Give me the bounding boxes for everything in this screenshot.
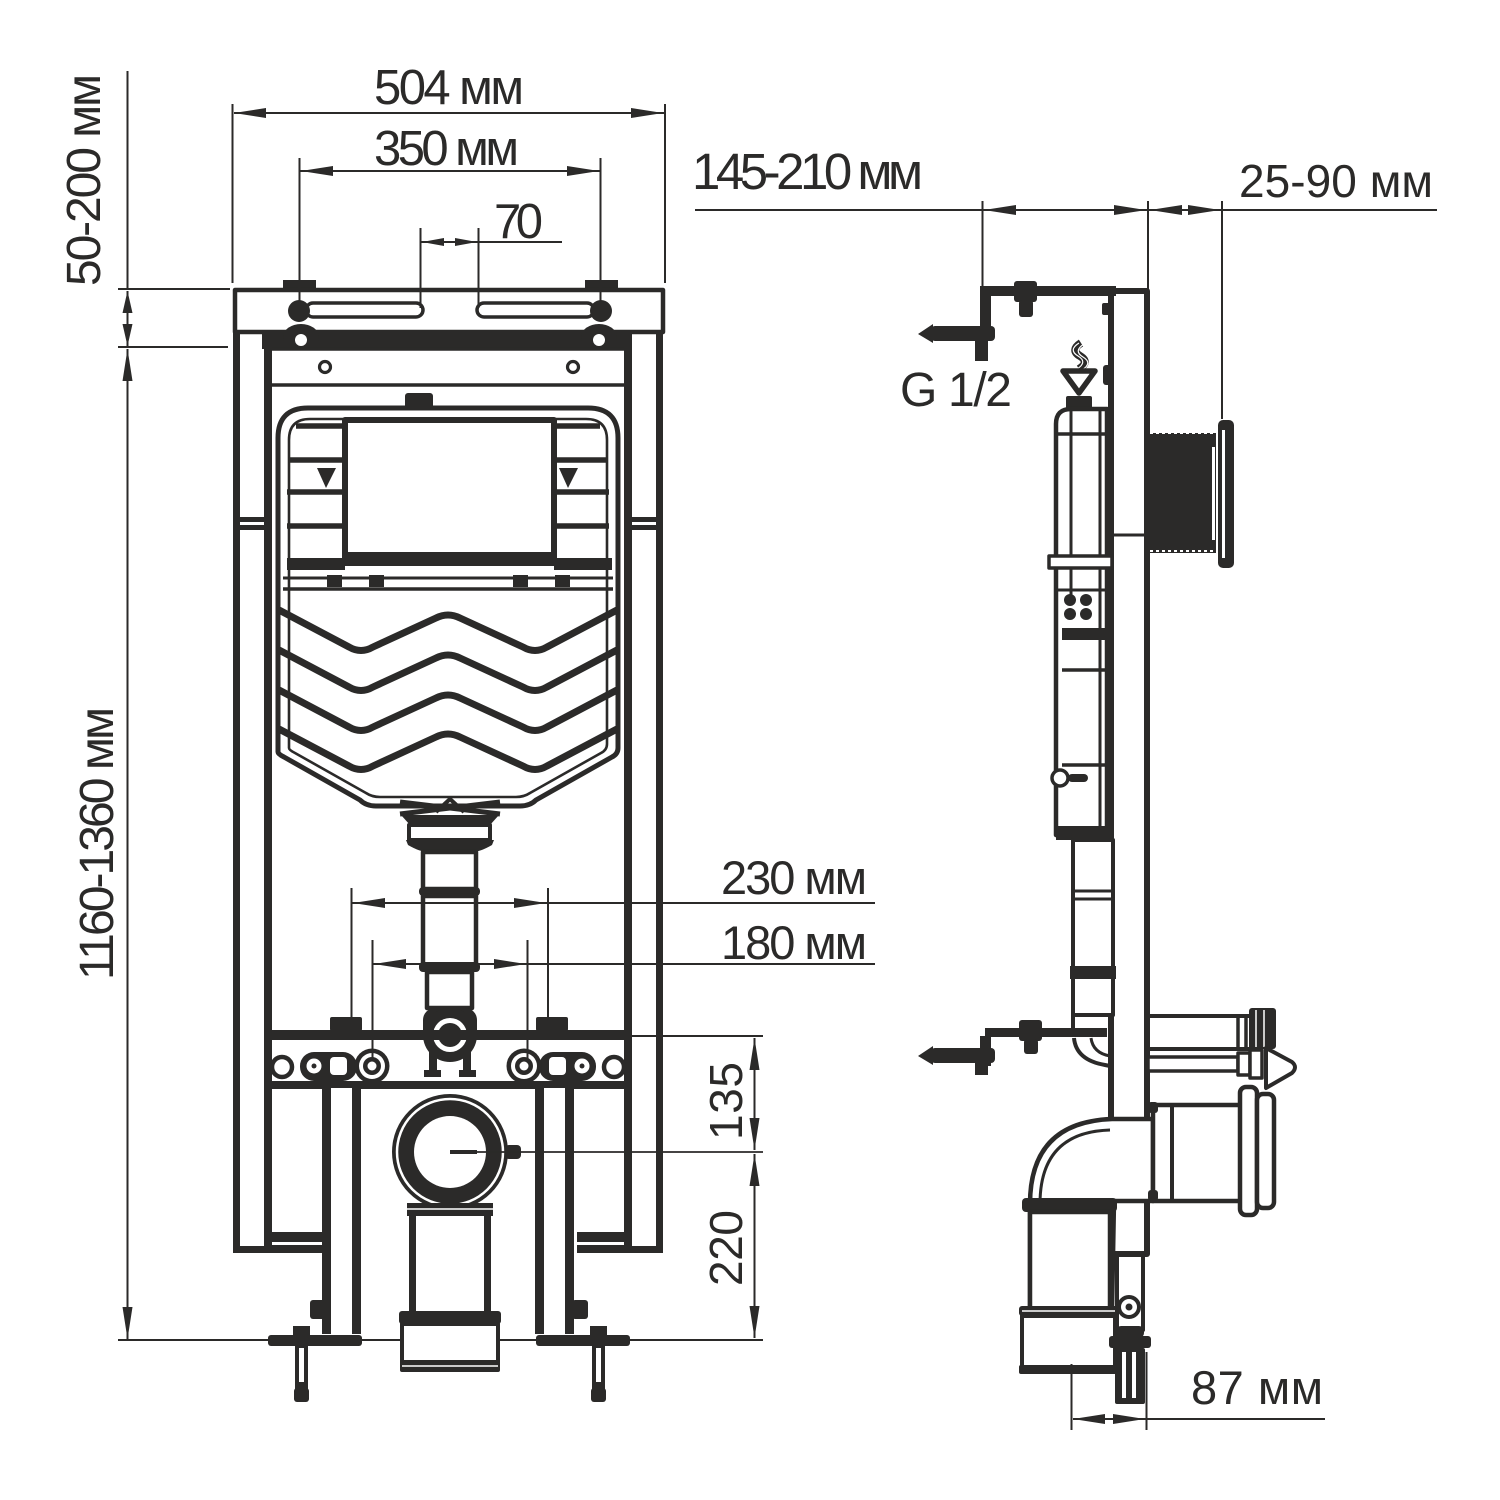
- svg-text:145-210 мм: 145-210 мм: [692, 143, 923, 200]
- svg-text:504 мм: 504 мм: [374, 61, 524, 115]
- svg-text:220: 220: [700, 1210, 752, 1286]
- svg-text:50-200 мм: 50-200 мм: [58, 74, 111, 286]
- svg-text:87 мм: 87 мм: [1191, 1361, 1323, 1414]
- svg-text:70: 70: [494, 195, 543, 249]
- svg-text:1160-1360 мм: 1160-1360 мм: [71, 707, 124, 980]
- svg-text:230 мм: 230 мм: [721, 851, 867, 904]
- svg-text:G 1/2: G 1/2: [900, 364, 1012, 417]
- svg-text:180 мм: 180 мм: [721, 916, 867, 969]
- svg-text:350 мм: 350 мм: [374, 122, 519, 176]
- svg-text:25-90 мм: 25-90 мм: [1239, 155, 1433, 207]
- svg-text:135: 135: [700, 1062, 752, 1140]
